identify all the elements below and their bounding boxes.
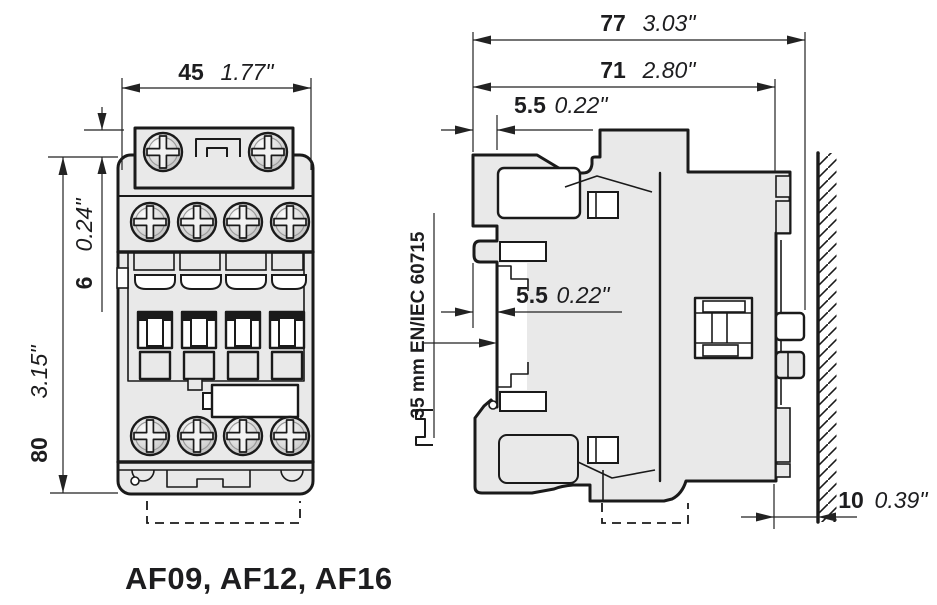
- front-width-inch-label: 1.77": [221, 59, 276, 85]
- front-dashed-outline: [147, 501, 300, 523]
- rail-groove-upper: [500, 242, 546, 261]
- terminal-dividers: [134, 253, 303, 270]
- back-lower-rect: [776, 464, 790, 477]
- screw-icon: [178, 203, 216, 241]
- arrow-right-icon: [787, 36, 805, 45]
- screw-icon: [271, 203, 309, 241]
- side-rail-offset-mm-label: 5.5: [516, 282, 548, 308]
- upper-recess: [498, 168, 580, 218]
- label-step: [188, 379, 202, 390]
- screw-icon: [144, 133, 182, 171]
- side-wall-gap-inch-label: 0.39": [875, 487, 930, 513]
- arrow-down-icon: [59, 475, 68, 493]
- front-width-mm-label: 45: [178, 59, 204, 85]
- arrow-right-icon: [455, 126, 473, 135]
- side-wall-gap-mm-label: 10: [838, 487, 864, 513]
- label-plate: [212, 385, 298, 417]
- screw-icon: [224, 203, 262, 241]
- detail-rect: [588, 437, 618, 463]
- side-notch: [117, 268, 128, 288]
- screw-icon: [131, 203, 169, 241]
- side-top-offset-inch-label: 0.22": [555, 92, 610, 118]
- screw-icon: [131, 417, 169, 455]
- side-body-depth-inch-label: 2.80": [642, 57, 698, 83]
- coil-terminal-block: [695, 298, 752, 358]
- front-height-mm-label: 80: [26, 437, 52, 463]
- arrow-left-icon: [473, 83, 491, 92]
- pivot-dot: [489, 401, 497, 409]
- arrow-down-icon: [98, 113, 107, 130]
- detail-rect: [588, 192, 618, 218]
- dim-front-top-offset: 6 0.24": [48, 107, 124, 312]
- din-clip-dashed-outline: [602, 503, 688, 523]
- front-height-inch-label: 3.15": [26, 344, 52, 399]
- arrow-up-icon: [98, 157, 107, 174]
- side-total-depth-inch-label: 3.03": [643, 10, 698, 36]
- screw-icon: [271, 417, 309, 455]
- arrow-right-icon: [479, 339, 497, 348]
- arrow-right-icon: [757, 83, 775, 92]
- arrow-right-icon: [293, 84, 311, 93]
- front-view: 45 1.77" 6 0.24" 80 3.15": [26, 59, 313, 523]
- arrow-right-icon: [756, 513, 774, 522]
- rail-clip-lower: [776, 352, 804, 378]
- pivot-dot: [131, 477, 139, 485]
- screw-icon: [224, 417, 262, 455]
- contactor-dimension-drawing: 45 1.77" 6 0.24" 80 3.15": [0, 0, 937, 605]
- side-body-depth-mm-label: 71: [600, 57, 626, 83]
- rail-standard-label: 35 mm EN/IEC 60715: [408, 231, 429, 418]
- front-offset-inch-label: 0.24": [71, 197, 97, 252]
- rail-clip-upper: [776, 313, 804, 340]
- back-step-rect: [776, 176, 790, 197]
- back-step-rect: [776, 201, 790, 233]
- back-lower-rect: [776, 408, 790, 462]
- wall: [818, 153, 837, 522]
- side-rail-offset-inch-label: 0.22": [557, 282, 612, 308]
- arrow-right-icon: [455, 308, 473, 317]
- side-top-offset-mm-label: 5.5: [514, 92, 546, 118]
- side-total-depth-mm-label: 77: [600, 10, 626, 36]
- rail-groove-lower: [500, 392, 546, 411]
- front-offset-mm-label: 6: [71, 277, 97, 290]
- model-caption: AF09, AF12, AF16: [125, 561, 393, 596]
- dim-side-top-offset: 5.5 0.22": [441, 92, 609, 150]
- arrow-left-icon: [473, 36, 491, 45]
- screw-icon: [249, 133, 287, 171]
- arrow-left-icon: [122, 84, 140, 93]
- side-view: 77 3.03" 71 2.80" 5.5 0.22": [408, 10, 929, 529]
- screw-icon: [178, 417, 216, 455]
- wall-hatch: [820, 153, 837, 522]
- arrow-left-icon: [497, 126, 515, 135]
- arrow-up-icon: [59, 157, 68, 175]
